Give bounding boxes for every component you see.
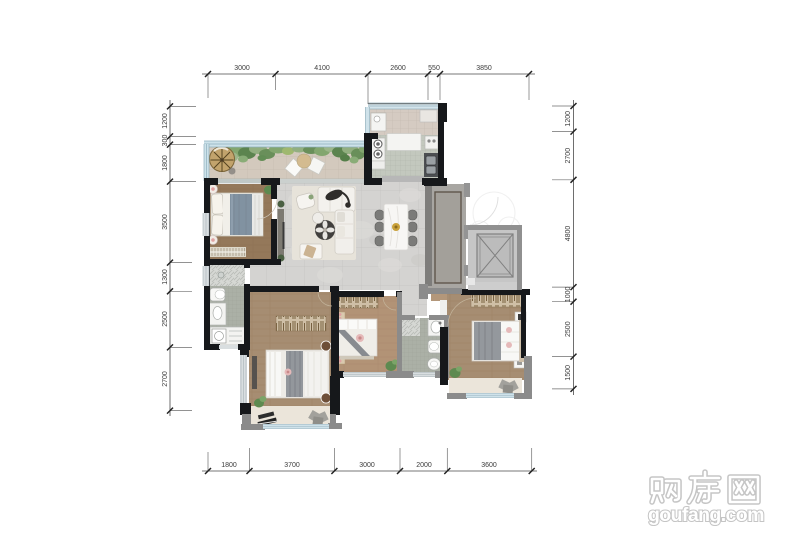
svg-text:2500: 2500 xyxy=(565,321,572,337)
svg-text:1200: 1200 xyxy=(565,111,572,127)
svg-text:2700: 2700 xyxy=(565,148,572,164)
svg-text:1300: 1300 xyxy=(162,269,169,285)
svg-text:2500: 2500 xyxy=(162,311,169,327)
svg-text:1500: 1500 xyxy=(565,365,572,381)
svg-text:4800: 4800 xyxy=(565,226,572,242)
svg-text:3600: 3600 xyxy=(481,462,497,469)
svg-text:3700: 3700 xyxy=(284,462,300,469)
svg-text:3850: 3850 xyxy=(476,65,492,72)
svg-text:goufang.com: goufang.com xyxy=(648,504,764,526)
svg-text:3000: 3000 xyxy=(234,65,250,72)
svg-text:550: 550 xyxy=(428,65,440,72)
svg-text:2000: 2000 xyxy=(416,462,432,469)
svg-text:1000: 1000 xyxy=(565,287,572,303)
svg-text:300: 300 xyxy=(162,135,169,147)
svg-text:3500: 3500 xyxy=(162,214,169,230)
svg-text:1200: 1200 xyxy=(162,113,169,129)
svg-text:1800: 1800 xyxy=(221,462,237,469)
svg-text:4100: 4100 xyxy=(314,65,330,72)
svg-text:3000: 3000 xyxy=(359,462,375,469)
svg-text:1800: 1800 xyxy=(162,155,169,171)
svg-text:2600: 2600 xyxy=(390,65,406,72)
svg-text:2700: 2700 xyxy=(162,371,169,387)
